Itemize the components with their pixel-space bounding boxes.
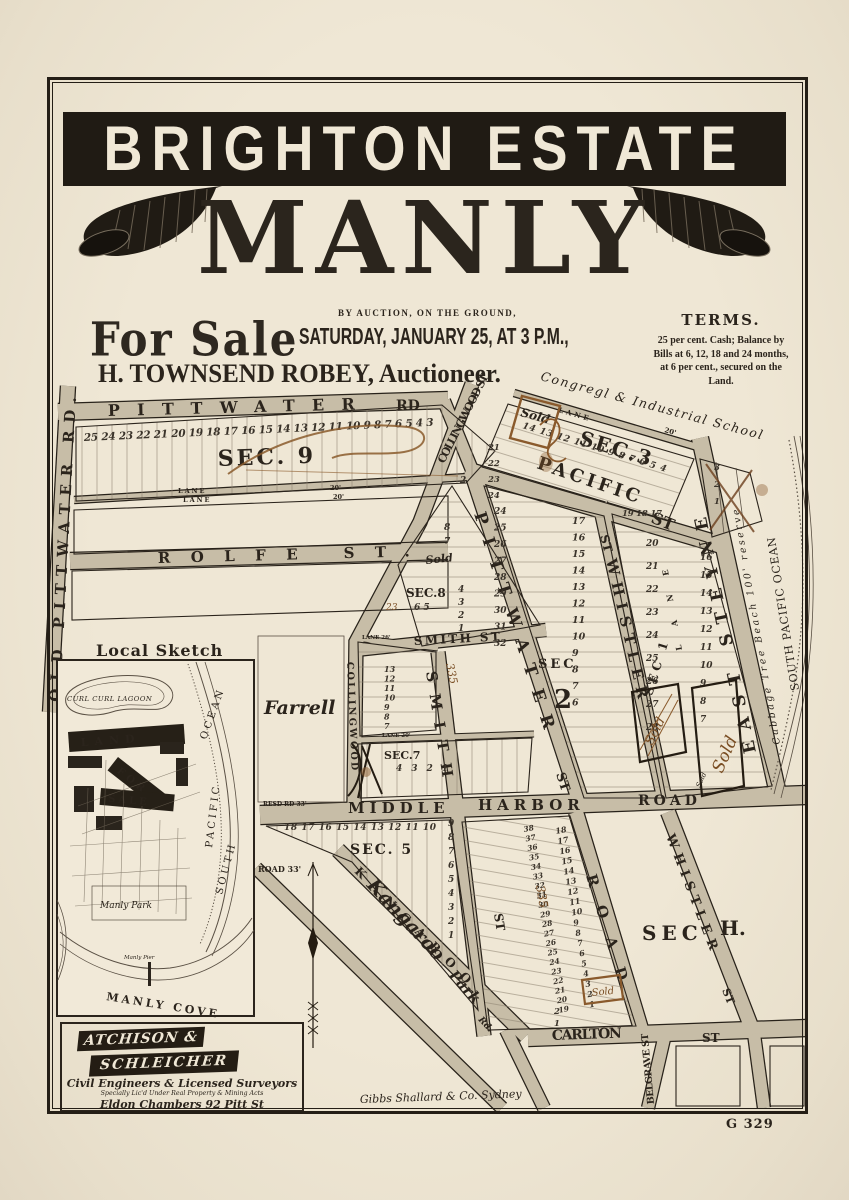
lot-sec8-mid: 6 5 [414,603,430,613]
surveyor-line-1: Civil Engineers & Licensed Surveyors [62,1077,302,1090]
section-label-h-b: H. [720,916,746,940]
auction-line-date: SATURDAY, JANUARY 25, AT 3 P.M., [299,325,569,351]
lane-label: LANE [183,496,212,504]
north-arrow [308,862,318,1048]
surveyor-credit-box: ATCHISON & SCHLEICHER Civil Engineers & … [60,1022,304,1112]
lane-label: LANE [178,487,207,495]
street-label-road-33: ROAD 33' [258,864,301,874]
lot-col-sec1-left: 202122232425262728 [645,539,659,733]
plate-number: G 329 [726,1117,774,1132]
farrell-label: Farrell [263,697,335,719]
terms-line-3: at 6 per cent., secured on the [636,361,806,375]
lot-col-small-block: 321 [713,463,720,507]
inset-title: Local Sketch [96,641,223,660]
lot-row-sec5: 18 17 16 15 14 13 12 11 10 [284,823,437,833]
terms-block: TERMS. 25 per cent. Cash; Balance by Bil… [636,311,806,388]
lane-width-label: 20' [330,484,341,492]
street-label-carlton: CARLTON [552,1025,625,1044]
inset-lagoon-label: CURL CURL LAGOON [67,695,153,703]
street-label-resd-rd: RESD RD 33' [263,801,307,808]
street-label-harbor: HARBOR [478,796,585,814]
terms-line-4: Land. [636,375,806,389]
section-label-h-a: SEC [642,921,703,945]
surveyor-line-2: Specially Lic'd Under Real Property & Mi… [62,1090,302,1097]
terms-line-1: 25 per cent. Cash; Balance by [636,334,806,348]
street-label-road: ROAD [638,793,701,809]
street-label-pittwater-rd-suffix: RD [396,398,420,414]
section-label-2b: 2 [554,685,572,715]
local-sketch-inset: Local Sketch CURL CURL LAGOON SOUTH PACI… [57,641,254,1021]
lane-label-20: LANE 20' [382,733,411,739]
auctioneer-line: H. TOWNSEND ROBEY, Auctioneer. [98,360,501,389]
section-label-2a: SEC [538,657,577,672]
for-sale-heading: For Sale [90,312,299,367]
estate-name: MANLY [0,188,849,288]
street-label-carlton-st-suffix: ST [702,1031,720,1045]
surveyor-line-3: Eldon Chambers 92 Pitt St [62,1098,302,1111]
section-label-5: SEC. 5 [350,842,413,858]
section-label-9: SEC. 9 [217,443,316,472]
surveyor-name-2: SCHLEICHER [89,1050,239,1076]
lot-sec9-extra: 2 [459,476,466,486]
street-label-smith-st-suffix: ST [491,912,508,932]
lot-row-sec1-top: 19 18 17 [622,509,662,519]
lot-col-sec5: 987654321 [447,819,455,941]
lane-width-label: 20' [333,493,344,501]
section-label-8: SEC.8 [406,586,446,600]
note-23: 23 [385,603,398,613]
section-label-7: SEC.7 [384,749,420,762]
street-label-middle: MIDDLE [348,799,450,817]
sold-handwritten-carlton: Sold [591,986,615,999]
ocean-label: SOUTH PACIFIC OCEAN [764,532,802,692]
lot-col-sec2-left: 242526272829303132 [493,507,507,649]
auction-line-small: BY AUCTION, ON THE GROUND, [335,308,520,318]
terms-heading: TERMS. [636,311,806,329]
lane-label-26: LANE 26' [362,635,391,641]
inset-pier-label: Manly Pier [123,955,155,961]
surveyor-name-1: ATCHISON & [77,1027,205,1051]
terms-line-2: Bills at 6, 12, 18 and 24 months, [636,348,806,362]
poster-paper: PITTWATER RD OLD PITTWATER RD. LANE 20' … [0,0,849,1200]
inset-park-label: Manly Park [99,901,152,911]
